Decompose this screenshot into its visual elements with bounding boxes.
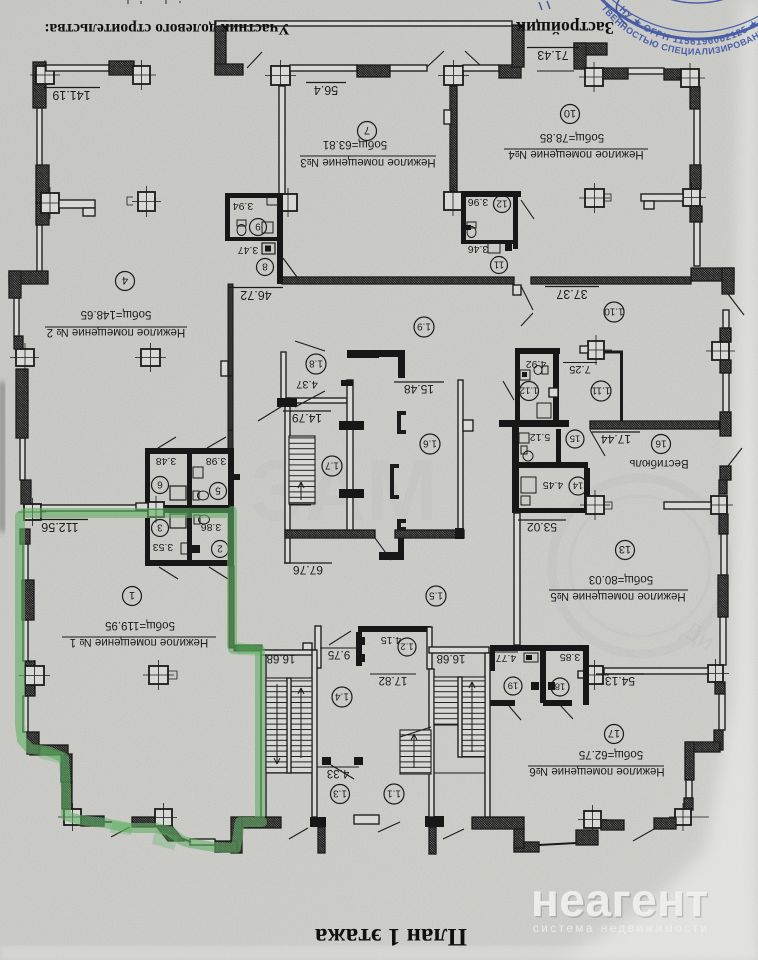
svg-text:2: 2 — [217, 543, 223, 554]
svg-text:16: 16 — [655, 438, 667, 449]
svg-text:4: 4 — [122, 274, 128, 286]
svg-text:13: 13 — [619, 543, 631, 555]
svg-text:1: 1 — [129, 589, 135, 601]
svg-text:1.10: 1.10 — [604, 306, 624, 317]
svg-text:56.4: 56.4 — [314, 83, 338, 97]
svg-text:14: 14 — [573, 480, 584, 491]
svg-text:3.94: 3.94 — [233, 200, 254, 212]
svg-text:5общ=62.75: 5общ=62.75 — [579, 748, 643, 760]
svg-text:5: 5 — [215, 485, 221, 496]
svg-text:54.13: 54.13 — [605, 674, 635, 688]
svg-text:1.12: 1.12 — [520, 385, 539, 396]
svg-text:71.43: 71.43 — [537, 48, 568, 62]
svg-text:15.48: 15.48 — [404, 382, 434, 396]
svg-text:19: 19 — [508, 680, 519, 691]
svg-text:План 1 этажа: План 1 этажа — [315, 923, 467, 950]
svg-text:3: 3 — [157, 522, 163, 533]
svg-text:1.5: 1.5 — [429, 590, 443, 601]
svg-text:1.2: 1.2 — [400, 641, 413, 652]
svg-text:Нежилое помещение №6: Нежилое помещение №6 — [529, 765, 664, 777]
svg-text:17.44: 17.44 — [601, 432, 631, 446]
svg-text:12: 12 — [496, 198, 508, 209]
svg-text:15: 15 — [570, 433, 581, 444]
svg-text:Нежилое помещение №4: Нежилое помещение №4 — [508, 148, 644, 160]
svg-text:4.45: 4.45 — [543, 479, 564, 491]
svg-text:9.75: 9.75 — [328, 648, 350, 660]
svg-text:53.02: 53.02 — [527, 520, 557, 534]
svg-text:112.56: 112.56 — [41, 520, 78, 534]
svg-text:неагент: неагент — [531, 874, 709, 926]
svg-text:67.76: 67.76 — [293, 563, 323, 577]
svg-text:6: 6 — [157, 479, 163, 490]
svg-text:3.48: 3.48 — [156, 455, 177, 467]
svg-text:Застройщик: Застройщик — [515, 18, 614, 38]
svg-text:Нежилое помещение № 2: Нежилое помещение № 2 — [47, 326, 185, 338]
svg-text:18: 18 — [555, 681, 566, 692]
svg-text:1.8: 1.8 — [309, 358, 323, 369]
svg-text:1.11: 1.11 — [591, 385, 610, 396]
svg-text:4.37: 4.37 — [296, 378, 317, 390]
svg-text:1.1: 1.1 — [387, 788, 401, 799]
svg-text:11: 11 — [493, 259, 504, 270]
svg-text:9: 9 — [255, 221, 261, 232]
svg-text:5.12: 5.12 — [530, 431, 551, 443]
svg-text:46.72: 46.72 — [240, 288, 271, 302]
svg-text:17.82: 17.82 — [379, 674, 408, 686]
svg-text:3.85: 3.85 — [560, 651, 581, 663]
svg-text:1.4: 1.4 — [335, 691, 349, 702]
svg-text:Вестибюль: Вестибюль — [629, 457, 688, 469]
svg-text:1.3: 1.3 — [333, 788, 347, 799]
svg-text:5общ=63.81: 5общ=63.81 — [323, 138, 387, 150]
svg-text:14.79: 14.79 — [292, 411, 322, 425]
svg-text:37.37: 37.37 — [556, 287, 587, 301]
svg-text:Участник долевого строительств: Участник долевого строительства: — [44, 20, 289, 37]
svg-text:3.96: 3.96 — [468, 196, 489, 208]
svg-text:5общ=80.03: 5общ=80.03 — [589, 573, 653, 585]
svg-text:3.46: 3.46 — [468, 243, 489, 255]
svg-text:4.33: 4.33 — [327, 767, 349, 779]
svg-text:16.68: 16.68 — [267, 652, 296, 664]
svg-text:16.68: 16.68 — [437, 652, 466, 664]
svg-text:17: 17 — [608, 727, 620, 739]
svg-text:4.77: 4.77 — [496, 652, 517, 664]
svg-text:1.6: 1.6 — [423, 438, 437, 449]
svg-text:система недвижимости: система недвижимости — [533, 923, 710, 935]
svg-text:1.7: 1.7 — [325, 460, 339, 471]
svg-text:3.98: 3.98 — [206, 455, 227, 467]
svg-text:1.9: 1.9 — [417, 321, 431, 332]
svg-text:Нежилое помещение №5: Нежилое помещение №5 — [550, 590, 685, 602]
svg-text:141.19: 141.19 — [52, 88, 90, 102]
svg-text:3.53: 3.53 — [153, 541, 174, 553]
svg-text:8: 8 — [262, 261, 268, 272]
svg-text:7: 7 — [364, 124, 370, 136]
svg-text:7.25: 7.25 — [569, 363, 590, 375]
svg-text:5общ=148.65: 5общ=148.65 — [81, 308, 152, 320]
svg-text:5общ=119.95: 5общ=119.95 — [105, 619, 175, 631]
svg-text:4.92: 4.92 — [526, 358, 547, 370]
svg-text:Нежилое помещение № 1: Нежилое помещение № 1 — [70, 636, 208, 648]
svg-text:3.47: 3.47 — [238, 244, 259, 256]
svg-text:5общ=78.85: 5общ=78.85 — [540, 131, 604, 143]
svg-text:3.86: 3.86 — [201, 521, 222, 533]
svg-text:10: 10 — [564, 107, 576, 119]
svg-text:Нежилое помещение №3: Нежилое помещение №3 — [300, 156, 435, 168]
